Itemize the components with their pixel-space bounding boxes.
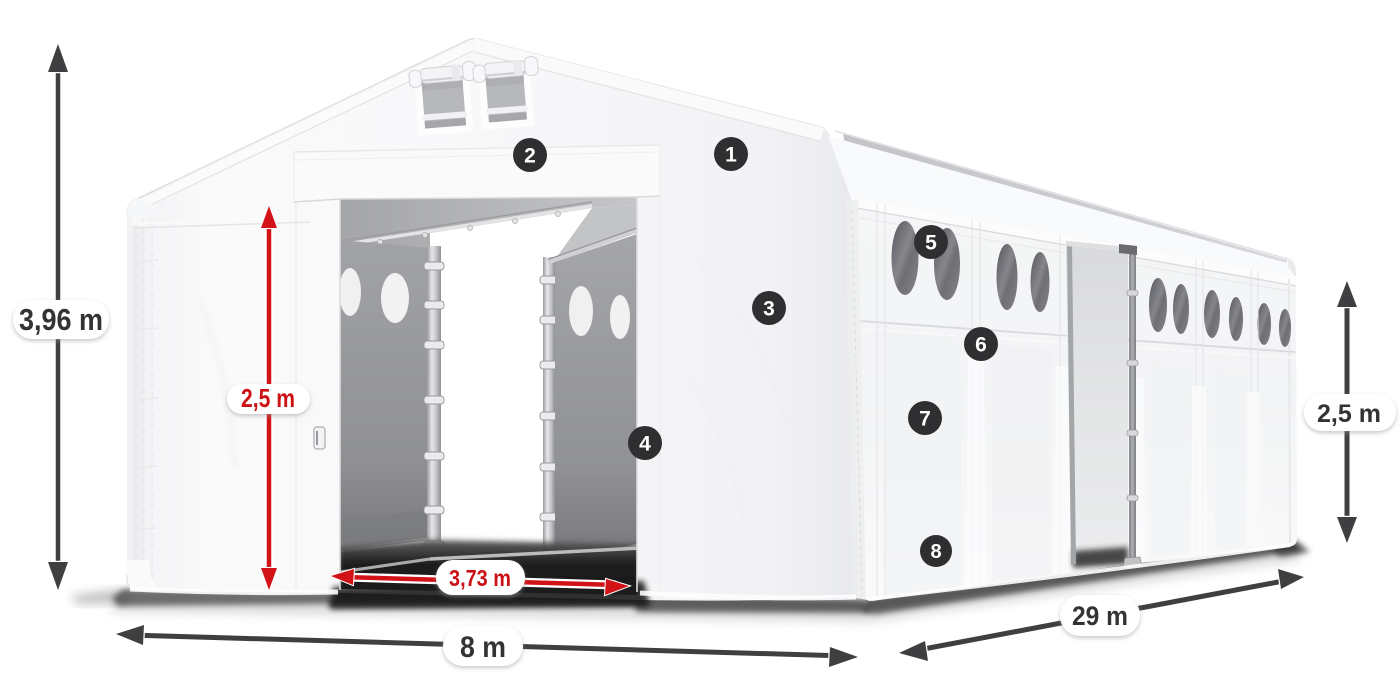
svg-text:3,96 m: 3,96 m [19, 302, 103, 337]
svg-text:3,73 m: 3,73 m [449, 565, 511, 591]
svg-text:6: 6 [975, 334, 987, 357]
svg-text:2,5 m: 2,5 m [241, 383, 295, 413]
svg-text:1: 1 [725, 144, 737, 167]
svg-text:3: 3 [763, 298, 775, 321]
svg-text:29 m: 29 m [1072, 601, 1128, 631]
svg-text:2,5 m: 2,5 m [1317, 400, 1381, 428]
svg-text:4: 4 [639, 433, 651, 456]
svg-text:8 m: 8 m [460, 631, 506, 664]
svg-text:8: 8 [930, 541, 941, 563]
svg-text:5: 5 [925, 232, 937, 255]
svg-text:2: 2 [524, 145, 536, 168]
svg-text:7: 7 [919, 408, 931, 431]
